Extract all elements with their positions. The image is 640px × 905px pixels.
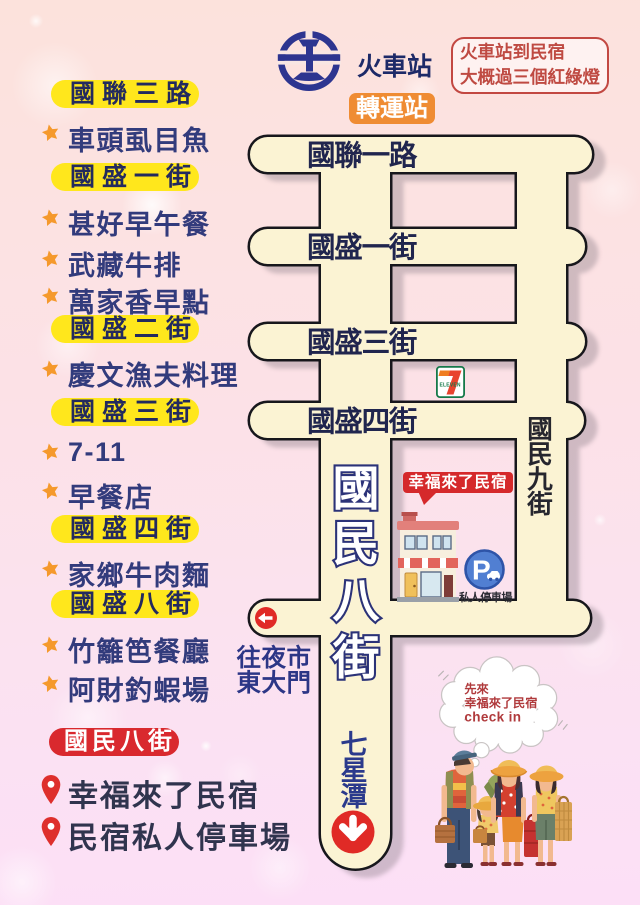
svg-text:P: P	[472, 555, 491, 586]
svg-text:街: 街	[332, 631, 380, 684]
svg-text:國: 國	[527, 416, 553, 444]
svg-text:民: 民	[527, 441, 553, 469]
svg-text:民: 民	[333, 517, 380, 570]
svg-text:check in: check in	[464, 710, 521, 725]
svg-text:九: 九	[526, 466, 553, 494]
svg-text:八: 八	[333, 574, 381, 627]
svg-text:ELEVEN: ELEVEN	[440, 383, 461, 389]
svg-text:街: 街	[526, 490, 553, 519]
svg-text:幸福來了民宿: 幸福來了民宿	[464, 695, 537, 710]
svg-text:潭: 潭	[341, 782, 368, 812]
svg-text:國: 國	[333, 462, 380, 515]
svg-text:先來: 先來	[464, 681, 489, 696]
